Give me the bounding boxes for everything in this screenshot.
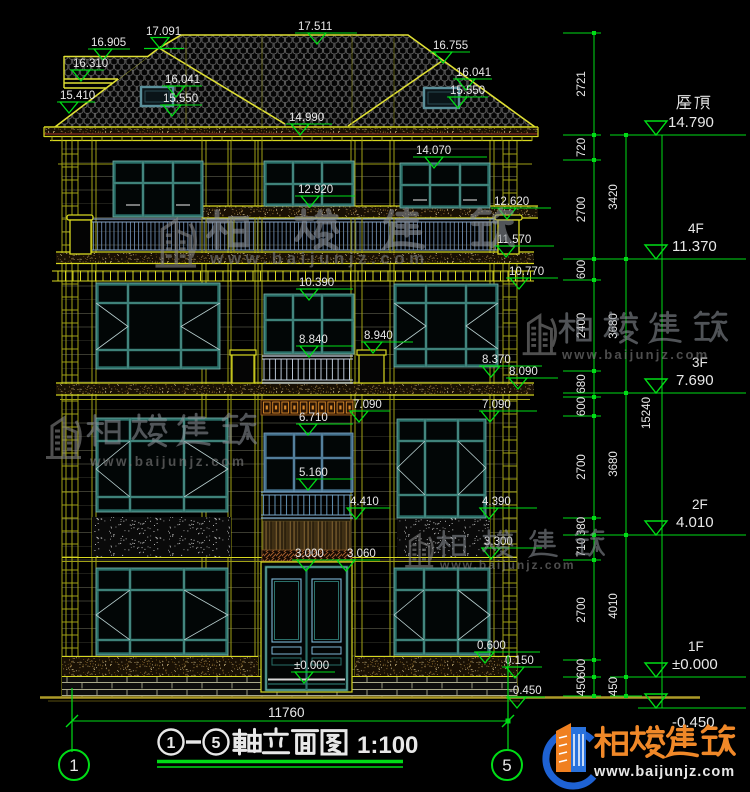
svg-text:4.010: 4.010 — [676, 514, 714, 531]
svg-text:www.baijunjz.com: www.baijunjz.com — [209, 249, 429, 268]
svg-text:16.310: 16.310 — [73, 58, 108, 70]
svg-text:4.410: 4.410 — [350, 496, 379, 508]
svg-text:8.370: 8.370 — [482, 354, 511, 366]
svg-text:15.550: 15.550 — [163, 93, 198, 105]
svg-text:8.090: 8.090 — [509, 366, 538, 378]
svg-text:14.790: 14.790 — [668, 114, 714, 131]
svg-text:5: 5 — [212, 735, 221, 752]
svg-text:www.baijunjz.com: www.baijunjz.com — [89, 454, 247, 469]
svg-text:1: 1 — [69, 756, 78, 775]
svg-text:8.840: 8.840 — [299, 334, 328, 346]
svg-text:14.990: 14.990 — [289, 112, 324, 124]
svg-text:15.410: 15.410 — [60, 90, 95, 102]
svg-text:2700: 2700 — [576, 597, 588, 623]
svg-text:680: 680 — [576, 374, 588, 393]
svg-text:7.690: 7.690 — [676, 372, 714, 389]
svg-text:7.090: 7.090 — [353, 399, 382, 411]
svg-text:8.940: 8.940 — [364, 330, 393, 342]
svg-text:17.091: 17.091 — [146, 26, 181, 38]
svg-text:4F: 4F — [688, 221, 704, 236]
svg-text:4.390: 4.390 — [482, 496, 511, 508]
svg-text:2700: 2700 — [576, 197, 588, 223]
svg-text:12.920: 12.920 — [298, 184, 333, 196]
svg-text:-0.450: -0.450 — [509, 685, 542, 697]
svg-text:15.550: 15.550 — [450, 85, 485, 97]
svg-text:17.511: 17.511 — [298, 21, 332, 33]
svg-text:3420: 3420 — [608, 184, 620, 210]
svg-text:3.060: 3.060 — [347, 548, 376, 560]
svg-text:2700: 2700 — [576, 454, 588, 480]
svg-text:0.150: 0.150 — [505, 655, 534, 667]
svg-text:1: 1 — [167, 735, 176, 752]
svg-text:±0.000: ±0.000 — [294, 660, 329, 672]
svg-text:16.905: 16.905 — [91, 37, 126, 49]
svg-text:2F: 2F — [692, 497, 708, 512]
svg-text:0.600: 0.600 — [477, 640, 506, 652]
svg-text:720: 720 — [576, 138, 588, 157]
svg-text:11.370: 11.370 — [672, 238, 717, 255]
svg-text:12.620: 12.620 — [494, 196, 529, 208]
svg-text:16.041: 16.041 — [165, 74, 200, 86]
svg-text:600: 600 — [576, 260, 588, 279]
svg-text:www.baijunjz.com: www.baijunjz.com — [593, 764, 735, 780]
svg-text:450: 450 — [576, 677, 588, 696]
svg-text:14.070: 14.070 — [416, 145, 451, 157]
svg-text:600: 600 — [576, 397, 588, 416]
svg-text:15240: 15240 — [641, 397, 653, 429]
svg-text:10.390: 10.390 — [299, 277, 334, 289]
svg-text:5: 5 — [502, 756, 511, 775]
svg-text:www.baijunjz.com: www.baijunjz.com — [439, 558, 576, 572]
svg-text:www.baijunjz.com: www.baijunjz.com — [561, 347, 709, 362]
svg-text:2721: 2721 — [576, 71, 588, 97]
svg-text:450: 450 — [608, 677, 620, 696]
svg-text:600: 600 — [576, 659, 588, 678]
svg-text:3680: 3680 — [608, 451, 620, 477]
svg-text:16.041: 16.041 — [456, 67, 491, 79]
svg-text:±0.000: ±0.000 — [672, 656, 718, 673]
svg-text:3.000: 3.000 — [295, 548, 324, 560]
svg-text:11760: 11760 — [268, 705, 305, 720]
svg-text:1:100: 1:100 — [357, 732, 418, 759]
svg-text:5.160: 5.160 — [299, 467, 328, 479]
svg-text:16.755: 16.755 — [433, 40, 468, 52]
svg-text:6.710: 6.710 — [299, 412, 328, 424]
svg-text:1F: 1F — [688, 639, 704, 654]
svg-text:7.090: 7.090 — [482, 399, 511, 411]
svg-text:4010: 4010 — [608, 593, 620, 619]
svg-text:10.770: 10.770 — [509, 266, 544, 278]
